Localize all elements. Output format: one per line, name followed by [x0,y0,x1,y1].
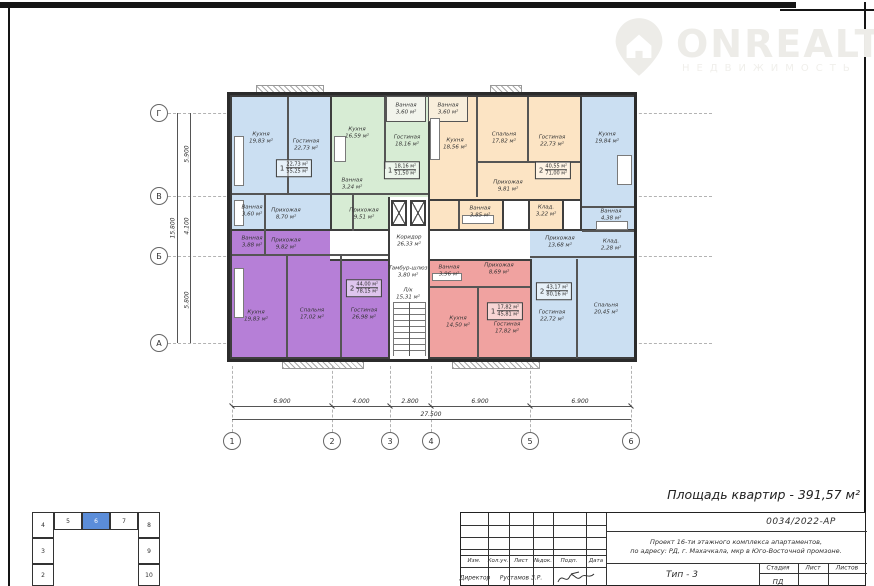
document-number: 0034/2022-АР [766,517,836,527]
stamp-col-data: Дата [589,558,603,564]
room-label: Тамбур-шлюз 3,80 м² [388,265,427,278]
wall [530,256,634,258]
room-label: Ванная 3,24 м² [341,177,362,190]
room-label: Ванная 4,38 м² [600,208,621,221]
dimension-label: 6.900 [571,398,588,405]
wall [527,97,529,163]
key-plan-block-9: 9 [138,538,160,564]
project-title-line2: по адресу: РД, г. Махачкала, мкр в Юго-В… [630,547,842,555]
logo-text: ONREALT [676,22,874,66]
sheet-col: Лист [805,565,820,572]
dimension-total-label: 27.500 [421,411,442,418]
apartment-1-tag: 1 22,73 м²55,25 м² [276,159,312,177]
plan-type-label: Тип - 3 [666,570,698,580]
wall [582,230,634,232]
room-label: Прихожая 9,81 м² [493,179,522,192]
elevator-shaft [391,200,407,226]
wall [476,97,478,197]
wall [286,256,288,357]
balcony [452,360,540,369]
axis-line-1 [232,366,233,432]
room-label: Прихожая 8,70 м² [271,207,300,220]
wall [430,286,530,288]
page-border-left [8,2,10,586]
room-label: Кухня 14,50 м² [446,315,470,328]
sheets-col: Листов [836,565,858,572]
stamp-person: Рустамов З.Р. [500,575,543,582]
room-label: Спальня 17,02 м² [300,307,324,320]
room-label: Прихожая 8,69 м² [484,262,513,275]
room-label: Ванная 3,88 м² [241,235,262,248]
project-title-line1: Проект 16-ти этажного комплекса апартаме… [650,538,822,546]
wall [384,97,386,169]
room-label: Ванная 3,60 м² [437,102,458,115]
stage-col: Стадия [766,565,789,572]
room-label: Коридор 26,33 м² [397,234,422,247]
key-plan-block-10: 10 [138,564,160,586]
room-label: Кухня 18,56 м² [443,137,467,150]
axis-line-3 [390,366,391,432]
room-label: Ванная 3,85 м² [469,205,490,218]
room-label: Ванная 3,60 м² [395,102,416,115]
row-bubble-b: Б [150,247,168,265]
wall [264,230,266,254]
logo-subtitle: НЕДВИЖИМОСТЬ [682,63,857,74]
kitchen-counter [334,136,346,162]
kitchen-counter [617,155,632,185]
room-label: Гостиная 22,72 м² [539,309,566,322]
row-bubble-v: В [150,187,168,205]
dimension-label: 6.900 [273,398,290,405]
signature-icon [555,570,597,586]
kitchen-counter [234,268,244,318]
wall [332,193,428,195]
col-bubble-5: 5 [521,432,539,450]
dimension-label: 4.000 [352,398,369,405]
axis-line-4 [431,366,432,432]
axis-line-5 [530,366,531,432]
drawing-sheet: ONREALT НЕДВИЖИМОСТЬ Г В Б А 1 2 3 4 5 6… [0,0,874,586]
row-bubble-a: А [150,334,168,352]
col-bubble-6: 6 [622,432,640,450]
stamp-col-koluch: Кол.уч. [488,558,509,564]
wall [477,288,479,358]
page-border-top-right [780,9,874,11]
room-label: Ванная 3,60 м² [241,204,262,217]
room-label: Ванная 3,96 м² [438,264,459,277]
room-label: Кухня 19,83 м² [244,309,268,322]
room-label: Л/к 15,31 м² [396,287,420,300]
wall [232,193,330,195]
dimension-label: 4.100 [184,217,191,234]
stamp-col-ndok: №док. [534,558,552,564]
room-label: Спальня 17,82 м² [492,131,516,144]
room-label: Прихожая 13,68 м² [545,235,574,248]
kitchen-counter [234,136,244,186]
dimension-line-bottom-total [232,419,631,420]
dimension-label: 5.900 [184,145,191,162]
key-plan-block-2: 2 [32,564,54,586]
wall [232,254,388,256]
corridor-area [330,229,530,261]
wall [340,256,342,357]
page-border-top [0,2,796,8]
apartment-4-tag: 2 43,17 м²80,16 м² [536,282,572,300]
stamp-role: Директор [460,575,491,582]
onrealt-pin-icon [606,14,672,80]
kitchen-counter [430,118,440,160]
stamp-col-izm: Изм. [468,558,481,564]
key-plan-block-7: 7 [110,512,138,530]
dimension-label: 5.800 [184,291,191,308]
key-plan-block-3: 3 [32,538,54,564]
wall [287,97,289,193]
total-area-title: Площадь квартир - 391,57 м² [667,487,860,502]
dimension-label: 6.900 [471,398,488,405]
room-label: Спальня 20,45 м² [594,302,618,315]
bathtub [596,221,628,230]
room-label: Кухня 19,83 м² [249,131,273,144]
room-label: Гостиная 17,82 м² [494,321,521,334]
stage-value: ПД [773,578,784,586]
key-plan-block-5: 5 [54,512,82,530]
room-label: Прихожая 9,51 м² [349,207,378,220]
dimension-label: 2.800 [401,398,418,405]
room-label: Кухня 19,84 м² [595,131,619,144]
room-label: Клад. 3,22 м² [536,204,556,217]
room-label: Гостиная 22,73 м² [293,138,320,151]
room-label: Гостиная 26,98 м² [351,307,378,320]
col-bubble-4: 4 [422,432,440,450]
stamp-col-list: Лист [514,558,528,564]
stamp-col-podp: Подп. [561,558,578,564]
apartment-3-tag: 2 40,55 м²71,00 м² [535,161,571,179]
room-label: Прихожая 9,82 м² [271,237,300,250]
room-label: Гостиная 18,16 м² [394,134,421,147]
apartment-5-tag: 2 44,00 м²78,15 м² [346,279,382,297]
wall [576,259,578,358]
col-bubble-3: 3 [381,432,399,450]
key-plan-block-8: 8 [138,512,160,538]
balcony [282,360,364,369]
apartment-6-tag: 1 17,82 м²45,81 м² [487,302,523,320]
wall [458,201,460,229]
title-block: Изм. Кол.уч. Лист №док. Подп. Дата Дирек… [460,512,866,586]
room-label: Гостиная 22,73 м² [539,134,566,147]
dimension-total-label: 15.800 [170,218,177,239]
key-plan-block-6-active: 6 [82,512,110,530]
apartment-2-tag: 1 18,16 м²51,50 м² [384,161,420,179]
key-plan-block-4: 4 [32,512,54,538]
key-plan: 4 5 6 7 8 3 9 2 10 [30,506,164,586]
page-border-right [864,2,866,586]
col-bubble-1: 1 [223,432,241,450]
elevator-shaft [410,200,426,226]
wall [264,195,266,231]
staircase-rail [409,302,410,356]
dimension-line-left-total [177,113,178,343]
room-label: Клад. 2,28 м² [601,238,621,251]
axis-line-6 [631,366,632,432]
row-bubble-g: Г [150,104,168,122]
col-bubble-2: 2 [323,432,341,450]
room-label: Кухня 16,59 м² [345,126,369,139]
balcony [490,85,522,94]
axis-line-2 [332,366,333,432]
balcony [256,85,324,94]
